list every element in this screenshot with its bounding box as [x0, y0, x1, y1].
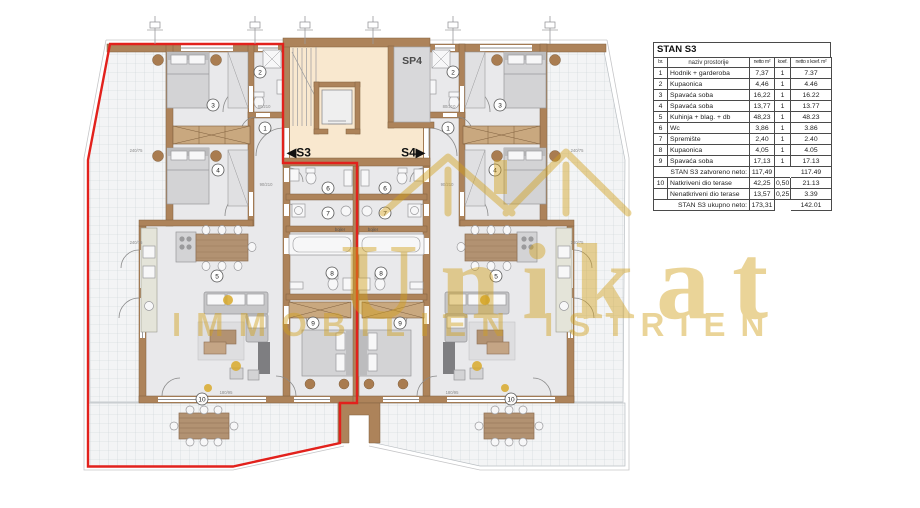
table-cell: STAN S3 ukupno neto:: [654, 200, 750, 211]
table-row: 9Spavaća soba17,13117.13: [654, 156, 832, 167]
table-cell: Spavaća soba: [668, 90, 750, 101]
area-table-header-row: br. naziv prostorije netto m² koef. nett…: [654, 58, 832, 68]
table-row: 6Wc3,8613.86: [654, 123, 832, 134]
dimension-label: 180/95: [446, 390, 459, 395]
svg-text:1: 1: [446, 125, 450, 132]
table-cell: 3.86: [791, 123, 832, 134]
table-row: 1Hodnik + garderoba7,3717.37: [654, 68, 832, 79]
table-cell: [775, 167, 791, 178]
svg-text:2: 2: [451, 69, 455, 76]
table-cell: 4,05: [750, 145, 775, 156]
table-cell: 10: [654, 178, 668, 189]
table-cell: 48.23: [791, 112, 832, 123]
table-cell: 48,23: [750, 112, 775, 123]
table-row: 10Natkriveni dio terase42,250,5021.13: [654, 178, 832, 189]
table-cell: 173,31: [750, 200, 775, 211]
room-marker: 6: [379, 182, 391, 194]
table-cell: 7: [654, 134, 668, 145]
table-cell: 6: [654, 123, 668, 134]
col-header-netto-koef: netto x koef. m²: [791, 58, 832, 68]
table-cell: 142.01: [791, 200, 832, 211]
table-cell: 42,25: [750, 178, 775, 189]
table-cell: Kuhinja + blag. + db: [668, 112, 750, 123]
room-marker: 3: [207, 99, 219, 111]
table-cell: STAN S3 zatvoreno neto:: [654, 167, 750, 178]
table-cell: 21.13: [791, 178, 832, 189]
svg-text:7: 7: [326, 210, 330, 217]
room-marker: 7: [322, 207, 334, 219]
table-cell: 2.40: [791, 134, 832, 145]
table-row: STAN S3 zatvoreno neto:117,49117.49: [654, 167, 832, 178]
table-row: Nenatkriveni dio terase13,570,253.39: [654, 189, 832, 200]
table-cell: 13,77: [750, 101, 775, 112]
table-cell: 13.77: [791, 101, 832, 112]
table-cell: 2: [654, 79, 668, 90]
dimension-label: 80/210: [258, 104, 271, 109]
table-cell: 4: [654, 101, 668, 112]
dimension-label: 180/95: [220, 390, 233, 395]
table-cell: 3.39: [791, 189, 832, 200]
table-cell: [775, 200, 791, 211]
table-cell: Spavaća soba: [668, 156, 750, 167]
table-cell: Nenatkriveni dio terase: [668, 189, 750, 200]
table-cell: 1: [775, 145, 791, 156]
table-cell: 17,13: [750, 156, 775, 167]
table-row: 7Spremište2,4012.40: [654, 134, 832, 145]
dimension-label: 240/75: [130, 148, 143, 153]
svg-text:3: 3: [498, 102, 502, 109]
table-cell: 1: [775, 79, 791, 90]
table-cell: 0,50: [775, 178, 791, 189]
table-row: 2Kupaonica4,4614.46: [654, 79, 832, 90]
table-cell: 1: [775, 90, 791, 101]
area-table-grid: br. naziv prostorije netto m² koef. nett…: [653, 57, 832, 211]
table-cell: 13,57: [750, 189, 775, 200]
s4-entry-label: S4▶: [401, 146, 426, 160]
watermark-subtitle: IMMOBILIEN ISTRIEN: [172, 306, 779, 343]
svg-text:1: 1: [263, 125, 267, 132]
room-marker: 2: [254, 66, 266, 78]
room-marker: 1: [442, 122, 454, 134]
area-table: STAN S3 br. naziv prostorije netto m² ko…: [653, 42, 831, 211]
svg-text:10: 10: [507, 396, 515, 403]
table-cell: 4.46: [791, 79, 832, 90]
s3-entry-label: ◀S3: [286, 146, 311, 160]
table-row: STAN S3 ukupno neto:173,31142.01: [654, 200, 832, 211]
dimension-label: 90/210: [260, 182, 273, 187]
sp4-room-label: SP4: [402, 55, 422, 67]
table-cell: Kupaonica: [668, 79, 750, 90]
table-cell: 7.37: [791, 68, 832, 79]
table-cell: 9: [654, 156, 668, 167]
room-marker: 8: [326, 267, 338, 279]
table-cell: 16,22: [750, 90, 775, 101]
svg-text:4: 4: [216, 167, 220, 174]
table-cell: 7,37: [750, 68, 775, 79]
room-marker: 1: [259, 122, 271, 134]
table-cell: Natkriveni dio terase: [668, 178, 750, 189]
area-table-title: STAN S3: [653, 42, 831, 57]
table-cell: [654, 189, 668, 200]
dimension-label: 240/75: [130, 240, 143, 245]
col-header-koef: koef.: [775, 58, 791, 68]
room-marker: 10: [196, 393, 208, 405]
table-row: 8Kupaonica4,0514.05: [654, 145, 832, 156]
table-cell: 17.13: [791, 156, 832, 167]
svg-text:2: 2: [258, 69, 262, 76]
table-cell: 117,49: [750, 167, 775, 178]
room-marker: 3: [494, 99, 506, 111]
table-cell: 1: [775, 134, 791, 145]
svg-text:10: 10: [198, 396, 206, 403]
table-cell: 16.22: [791, 90, 832, 101]
svg-text:6: 6: [383, 185, 387, 192]
table-cell: Hodnik + garderoba: [668, 68, 750, 79]
table-cell: 117.49: [791, 167, 832, 178]
col-header-naziv: naziv prostorije: [668, 58, 750, 68]
room-marker: 4: [212, 164, 224, 176]
table-cell: Kupaonica: [668, 145, 750, 156]
table-cell: 0,25: [775, 189, 791, 200]
svg-text:5: 5: [215, 273, 219, 280]
table-cell: Spremište: [668, 134, 750, 145]
svg-text:3: 3: [211, 102, 215, 109]
table-cell: 1: [775, 68, 791, 79]
table-cell: 4,46: [750, 79, 775, 90]
dimension-label: 240/75: [571, 148, 584, 153]
table-cell: 8: [654, 145, 668, 156]
table-row: 5Kuhinja + blag. + db48,23148.23: [654, 112, 832, 123]
table-cell: 5: [654, 112, 668, 123]
room-marker: 6: [322, 182, 334, 194]
table-cell: 2,40: [750, 134, 775, 145]
table-cell: Spavaća soba: [668, 101, 750, 112]
table-cell: 3,86: [750, 123, 775, 134]
table-cell: 4.05: [791, 145, 832, 156]
room-marker: 5: [211, 270, 223, 282]
floor-plan-page: SP4 ◀S3 S4▶ bojler bojler 240/75240/7580…: [0, 0, 920, 508]
table-cell: 1: [654, 68, 668, 79]
area-table-body: 1Hodnik + garderoba7,3717.372Kupaonica4,…: [654, 68, 832, 211]
table-cell: 1: [775, 123, 791, 134]
room-marker: 2: [447, 66, 459, 78]
table-cell: 1: [775, 112, 791, 123]
dimension-label: 80/210: [443, 104, 456, 109]
table-cell: 3: [654, 90, 668, 101]
table-cell: 1: [775, 101, 791, 112]
col-header-netto: netto m²: [750, 58, 775, 68]
table-cell: 1: [775, 156, 791, 167]
svg-text:6: 6: [326, 185, 330, 192]
col-header-br: br.: [654, 58, 668, 68]
svg-text:8: 8: [330, 270, 334, 277]
table-row: 4Spavaća soba13,77113.77: [654, 101, 832, 112]
table-row: 3Spavaća soba16,22116.22: [654, 90, 832, 101]
table-cell: Wc: [668, 123, 750, 134]
room-marker: 10: [505, 393, 517, 405]
